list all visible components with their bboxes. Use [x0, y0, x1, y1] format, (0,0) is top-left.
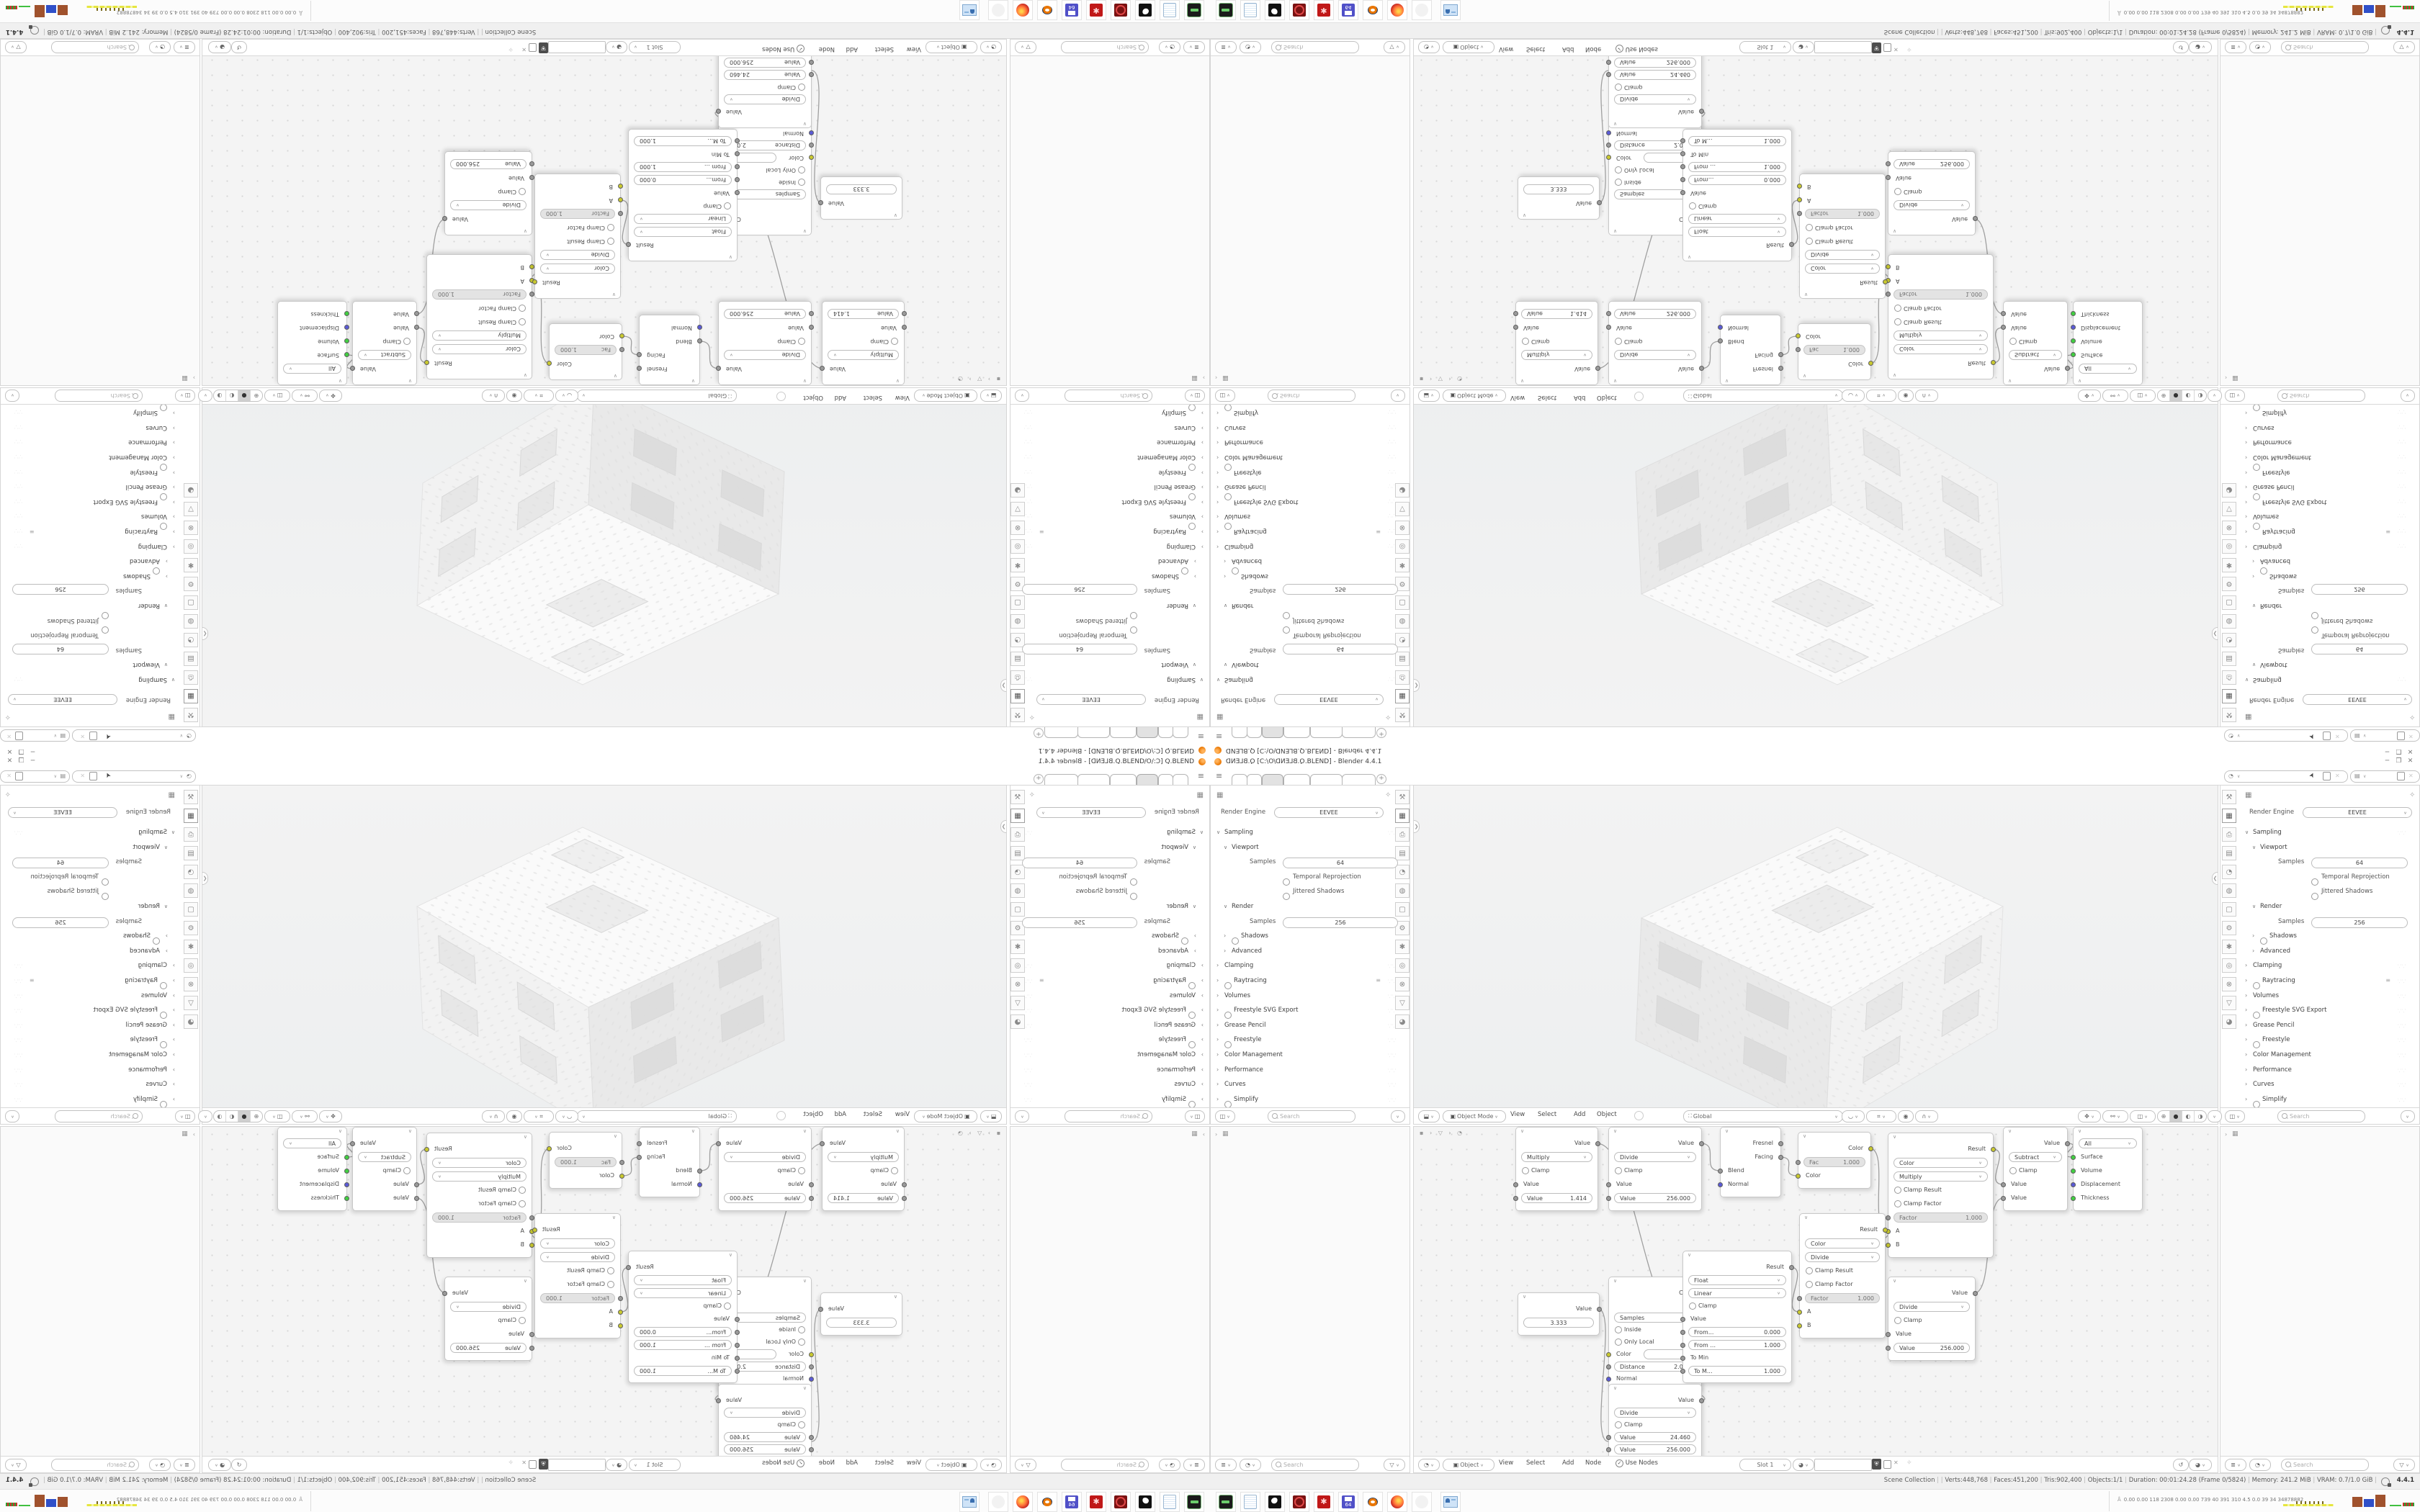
search-input[interactable]: Search — [2281, 41, 2369, 53]
scene-selector[interactable]: ◔∨➤✕ — [72, 729, 196, 742]
input-socket[interactable] — [809, 143, 814, 148]
shading-material[interactable]: ◐ — [2182, 390, 2195, 401]
display-mode-button[interactable]: ≣ ∨ — [2225, 41, 2246, 53]
input-socket[interactable] — [1680, 1317, 1685, 1322]
pin-icon[interactable]: ✧ — [1385, 713, 1391, 721]
tool-properties-tab-icon[interactable]: ⚒ — [1010, 708, 1025, 722]
input-socket[interactable] — [2001, 1182, 2006, 1187]
input-socket[interactable] — [735, 1330, 740, 1335]
prop-row-simplify[interactable]: ›Simplify⸪⸪ — [1012, 405, 1209, 418]
pin-icon[interactable]: ✧ — [2409, 791, 2415, 799]
input-socket[interactable] — [2001, 311, 2006, 316]
checkbox-unchecked[interactable] — [2311, 610, 2318, 624]
checkbox-unchecked[interactable] — [403, 1167, 411, 1175]
node-select[interactable]: All∨ — [283, 364, 341, 374]
view-layer-selector[interactable]: ▤∨✕ — [0, 770, 70, 783]
render-properties-tab-icon[interactable]: ▦ — [184, 809, 198, 823]
checkbox-unchecked[interactable] — [1224, 978, 1232, 991]
physics-properties-tab-icon[interactable]: ◎ — [184, 539, 198, 554]
editor-type-button[interactable]: ◫ ∨ — [175, 390, 195, 402]
input-socket[interactable] — [1680, 138, 1685, 143]
node-select[interactable]: Divide∨ — [724, 1152, 806, 1162]
show-gizmo-button[interactable]: ✥ ∨ — [319, 1110, 342, 1122]
view-layer-properties-tab-icon[interactable]: ▤ — [184, 652, 198, 666]
prop-row-clamping[interactable]: ›Clamping⸪⸪ — [1012, 539, 1209, 552]
node-mix-color-multiply[interactable]: ∨ResultColor∨Multiply∨Clamp ResultClamp … — [1888, 254, 1994, 379]
checkbox-unchecked[interactable] — [1894, 187, 1901, 195]
prop-row-sampling[interactable]: ∨Sampling⸪⸪ — [2239, 672, 2418, 685]
prop-row-grease-pencil[interactable]: ›Grease Pencil⸪⸪ — [2239, 1020, 2418, 1033]
prop-row-performance[interactable]: ›Performance⸪⸪ — [2, 1065, 181, 1078]
menu-select[interactable]: Select — [1526, 45, 1545, 53]
checkbox-unchecked[interactable] — [2009, 337, 2017, 345]
prop-row-advanced[interactable]: ›Advanced — [2, 946, 181, 959]
taskbar-app-red-app-1[interactable] — [1289, 1492, 1309, 1512]
shading-mode-segment[interactable]: ⊕●◐◑ — [213, 390, 263, 402]
slot-select[interactable]: Slot 1 ∨ — [1739, 1459, 1791, 1471]
checkbox-unchecked[interactable] — [2253, 491, 2260, 505]
node-select[interactable]: Divide∨ — [540, 1252, 615, 1262]
display-mode-button[interactable]: ≣ ∨ — [174, 1459, 195, 1471]
output-socket[interactable] — [716, 366, 721, 371]
prop-row-freestyle[interactable]: ›Freestyle⸪⸪ — [2, 464, 181, 477]
menu-view[interactable]: View — [907, 1459, 921, 1467]
output-socket[interactable] — [716, 109, 721, 114]
menu-view[interactable]: View — [907, 45, 921, 53]
prop-row-simplify[interactable]: ›Simplify⸪⸪ — [1211, 405, 1408, 418]
checkbox-unchecked[interactable] — [1615, 178, 1622, 186]
collapse-chevron-icon[interactable]: ∨ — [1613, 1278, 1617, 1284]
copy-icon[interactable] — [15, 732, 23, 740]
prop-row-sampling[interactable]: ∨Sampling⸪⸪ — [1211, 827, 1408, 840]
filter-type-button[interactable]: ◔ ∨ — [1159, 41, 1180, 53]
physics-properties-tab-icon[interactable]: ◎ — [184, 958, 198, 973]
prop-row-render[interactable]: ∨Render — [1012, 901, 1209, 914]
workspace-tab-3[interactable] — [1262, 774, 1283, 785]
taskbar-app-floppy-64[interactable]: 64 — [1338, 0, 1358, 20]
tool-properties-tab-icon[interactable]: ⚒ — [1010, 790, 1025, 804]
prop-row-simplify[interactable]: ›Simplify⸪⸪ — [2, 405, 181, 418]
input-socket[interactable] — [902, 1196, 907, 1201]
output-socket[interactable] — [626, 1265, 631, 1270]
prop-row-freestyle[interactable]: ›Freestyle⸪⸪ — [2239, 464, 2418, 477]
material-properties-tab-icon[interactable]: ◕ — [184, 483, 198, 498]
checkbox-unchecked[interactable] — [519, 318, 526, 325]
render-properties-tab-icon[interactable]: ▦ — [2222, 689, 2236, 703]
output-socket[interactable] — [1868, 361, 1873, 366]
checkbox-unchecked[interactable] — [607, 237, 614, 245]
close-button[interactable]: ✕ — [2406, 747, 2415, 755]
output-socket[interactable] — [2065, 1141, 2070, 1146]
node-value-field[interactable]: To M...1.000 — [1688, 136, 1786, 146]
menu-view[interactable]: View — [895, 394, 910, 401]
prop-row-curves[interactable]: ›Curves⸪⸪ — [1012, 420, 1209, 433]
constraints-properties-tab-icon[interactable]: ⊗ — [2222, 977, 2236, 991]
field-value[interactable]: 64 — [2311, 644, 2408, 654]
field-value[interactable]: 256 — [1022, 917, 1137, 928]
collapse-menus-button[interactable]: ∨ — [5, 390, 19, 402]
snapping-toggle-button[interactable]: ↺ — [231, 41, 247, 53]
prop-row-volumes[interactable]: ›Volumes⸪⸪ — [1012, 508, 1209, 521]
prop-row-freestyle-svg-export[interactable]: ›Freestyle SVG Export⸪⸪ — [1211, 494, 1408, 507]
material-properties-tab-icon[interactable]: ◕ — [2222, 483, 2236, 498]
workspace-tab-6[interactable] — [1044, 727, 1078, 738]
checkbox-unchecked[interactable] — [1130, 874, 1137, 888]
node-map-range[interactable]: ∨ResultFloat∨Linear∨ClampValueFrom...0.0… — [1682, 1251, 1792, 1383]
show-gizmo-button[interactable]: ✥ ∨ — [2078, 390, 2101, 402]
checkbox-unchecked[interactable] — [1806, 237, 1813, 245]
node-select[interactable]: Divide∨ — [1894, 1302, 1970, 1312]
taskbar-app-drive-utility[interactable] — [1216, 0, 1236, 20]
input-socket[interactable] — [2071, 352, 2076, 357]
render-properties-tab-icon[interactable]: ▦ — [1010, 809, 1025, 823]
node-math-divide-2[interactable]: ∨ValueDivide∨ClampValue24.460Value256.00… — [1608, 51, 1702, 128]
node-layer-weight[interactable]: ∨FresnelFacingBlendNormal — [1720, 1127, 1781, 1197]
close-x-icon[interactable]: ✕ — [521, 46, 526, 53]
prop-row-shadows[interactable]: ›Shadows — [2239, 931, 2418, 944]
menu-node[interactable]: Node — [819, 1459, 835, 1467]
browse-material-button[interactable]: ◕ ∨ — [606, 41, 627, 53]
checkbox-unchecked[interactable] — [160, 1007, 167, 1021]
search-input[interactable]: Search — [1065, 1110, 1152, 1122]
pin-icon[interactable]: ➤ — [103, 771, 112, 779]
output-socket[interactable] — [1883, 279, 1888, 284]
editor-type-button[interactable]: ◔ ∨ — [1418, 41, 1440, 53]
node-value[interactable]: ∨Value3.333 — [1518, 1292, 1600, 1336]
add-workspace-button[interactable]: + — [1376, 728, 1386, 738]
taskbar-app-red-app-1[interactable] — [1111, 1492, 1131, 1512]
mode-select[interactable]: ▣ Object Mode ∨ — [914, 390, 977, 402]
menu-object[interactable]: Object — [1597, 394, 1617, 401]
node-output-all[interactable]: ∨All∨SurfaceVolumeDisplacementThickness — [277, 1127, 347, 1211]
checkbox-unchecked[interactable] — [1130, 624, 1137, 638]
node-value-field[interactable]: Value24.460 — [724, 1432, 806, 1442]
prop-row-render[interactable]: ∨Render — [1012, 598, 1209, 611]
output-socket[interactable] — [442, 1291, 447, 1296]
checkbox-unchecked[interactable] — [798, 337, 805, 345]
transform-orientation-select[interactable]: ⛶ Global∨ — [577, 1110, 737, 1122]
node-value-field[interactable]: To M...1.000 — [1688, 1366, 1786, 1376]
prop-row-temporal-reprojection[interactable]: Temporal Reprojection — [2, 627, 181, 640]
input-socket[interactable] — [2071, 311, 2076, 316]
node-select[interactable]: Float∨ — [634, 227, 732, 237]
node-math-subtract[interactable]: ∨ValueSubtract∨ClampValueValue — [2003, 301, 2068, 385]
input-socket[interactable] — [735, 151, 740, 156]
checkbox-unchecked[interactable] — [2311, 888, 2318, 902]
prop-row-volumes[interactable]: ›Volumes⸪⸪ — [2239, 508, 2418, 521]
copy-icon[interactable] — [1883, 1460, 1891, 1469]
collapse-chevron-icon[interactable]: ∨ — [1520, 1128, 1524, 1134]
filter-funnel-button[interactable]: ▽ ∨ — [2393, 1459, 2415, 1471]
taskbar-app-ghost-app[interactable] — [1412, 0, 1432, 20]
prop-row-freestyle[interactable]: ›Freestyle⸪⸪ — [2239, 1035, 2418, 1048]
render-properties-tab-icon[interactable]: ▦ — [1395, 689, 1410, 703]
prop-row-volumes[interactable]: ›Volumes⸪⸪ — [2, 991, 181, 1004]
prop-row-viewport[interactable]: ∨Viewport — [1211, 657, 1408, 670]
node-select[interactable]: Divide∨ — [1805, 1252, 1880, 1262]
modifiers-properties-tab-icon[interactable]: ⚙ — [184, 577, 198, 591]
input-socket[interactable] — [1886, 161, 1891, 166]
prop-row-grease-pencil[interactable]: ›Grease Pencil⸪⸪ — [1012, 1020, 1209, 1033]
shading-material[interactable]: ◐ — [2182, 1111, 2195, 1122]
snap-target-button[interactable]: ⌗ ∨ — [1866, 390, 1896, 402]
output-socket[interactable] — [350, 1141, 355, 1146]
output-socket[interactable] — [1883, 1228, 1888, 1233]
checkbox-unchecked[interactable] — [1615, 1421, 1622, 1429]
checkbox-unchecked[interactable] — [1615, 1338, 1622, 1346]
transform-orientation-select[interactable]: ⛶ Global∨ — [577, 390, 737, 402]
field-value[interactable]: 64 — [1022, 644, 1137, 654]
node-value[interactable]: ∨Value3.333 — [1518, 176, 1600, 220]
node-mix-fac[interactable]: ∨ColorFac1.000Color — [1798, 323, 1871, 380]
node-select[interactable]: Color∨ — [1805, 1238, 1880, 1248]
input-socket[interactable] — [1606, 1447, 1611, 1452]
node-layer-weight[interactable]: ∨FresnelFacingBlendNormal — [1720, 315, 1781, 385]
node-select[interactable]: Color∨ — [432, 344, 526, 354]
minimize-button[interactable]: ─ — [28, 747, 37, 755]
input-socket[interactable] — [414, 1182, 419, 1187]
editor-type-button[interactable]: ⬓ ∨ — [980, 1110, 1002, 1122]
world-properties-tab-icon[interactable]: ◍ — [184, 883, 198, 898]
node-value-field[interactable]: Value256.000 — [1894, 159, 1970, 169]
taskbar-app-floppy-64[interactable]: 64 — [1338, 1492, 1358, 1512]
output-socket[interactable] — [818, 1307, 823, 1312]
node-select[interactable]: Multiply∨ — [1521, 1152, 1592, 1162]
search-input[interactable]: Search — [1268, 390, 1355, 402]
prop-row-clamping[interactable]: ›Clamping⸪⸪ — [2, 960, 181, 973]
snap-target-button[interactable]: ⌗ ∨ — [524, 390, 554, 402]
node-math-divide-3[interactable]: ∨ValueDivide∨ClampValueValue256.000 — [444, 151, 532, 235]
input-socket[interactable] — [809, 1377, 814, 1382]
prop-row-sampling[interactable]: ∨Sampling⸪⸪ — [1012, 827, 1209, 840]
copy-icon[interactable] — [15, 772, 23, 780]
prop-row-curves[interactable]: ›Curves⸪⸪ — [2, 420, 181, 433]
checkbox-unchecked[interactable] — [891, 337, 898, 345]
shader-type-select[interactable]: ▣ Object ∨ — [926, 41, 977, 53]
taskbar-app-red-app-2[interactable]: ✱ — [1314, 1492, 1334, 1512]
collapse-chevron-icon[interactable]: ∨ — [524, 372, 527, 378]
output-socket[interactable] — [820, 1141, 825, 1146]
input-socket[interactable] — [902, 1182, 907, 1187]
prop-row-jittered-shadows[interactable]: Jittered Shadows — [2239, 613, 2418, 626]
node-select[interactable]: All∨ — [283, 1138, 341, 1148]
prop-row-raytracing[interactable]: ›Raytracing≡⸪⸪ — [1012, 976, 1209, 989]
add-workspace-button[interactable]: + — [1376, 774, 1386, 784]
prop-row-sampling[interactable]: ∨Sampling⸪⸪ — [2, 672, 181, 685]
checkbox-unchecked[interactable] — [1522, 337, 1529, 345]
object-properties-tab-icon[interactable]: ▢ — [184, 595, 198, 610]
input-socket[interactable] — [809, 1364, 814, 1369]
copy-icon[interactable] — [2397, 732, 2405, 740]
taskbar-app-blender[interactable] — [1363, 0, 1383, 20]
prop-row-grease-pencil[interactable]: ›Grease Pencil⸪⸪ — [1012, 479, 1209, 492]
prop-row-clamping[interactable]: ›Clamping⸪⸪ — [2239, 539, 2418, 552]
node-math-divide-2[interactable]: ∨ValueDivide∨ClampValue24.460Value256.00… — [1608, 1384, 1702, 1461]
checkbox-unchecked[interactable] — [1894, 1187, 1901, 1194]
node-select[interactable]: Multiply∨ — [828, 1152, 899, 1162]
editor-type-button[interactable]: ◫ ∨ — [1185, 390, 1205, 402]
snapping-button[interactable]: ◡ ∨ — [555, 1110, 578, 1122]
collapse-chevron-icon[interactable]: ∨ — [1523, 212, 1526, 218]
workspace-tab-5[interactable] — [1077, 774, 1110, 785]
prop-row-freestyle-svg-export[interactable]: ›Freestyle SVG Export⸪⸪ — [2, 494, 181, 507]
prop-row-temporal-reprojection[interactable]: Temporal Reprojection — [1211, 872, 1408, 885]
filter-type-button[interactable]: ◔ ∨ — [149, 1459, 171, 1471]
search-input[interactable]: Search — [1268, 1110, 1355, 1122]
node-value-field[interactable]: Factor1.000 — [540, 209, 615, 219]
input-socket[interactable] — [697, 325, 702, 330]
prop-row-samples[interactable]: Samples256 — [1012, 917, 1209, 930]
shading-rendered[interactable]: ◑ — [2195, 1111, 2206, 1122]
input-socket[interactable] — [1606, 1182, 1611, 1187]
checkbox-unchecked[interactable] — [1615, 166, 1622, 174]
display-mode-button[interactable]: ≣ ∨ — [1215, 1459, 1237, 1471]
node-select[interactable]: Subtract∨ — [2009, 350, 2062, 360]
collapse-chevron-icon[interactable]: ∨ — [339, 1128, 342, 1134]
node-select[interactable]: Linear∨ — [634, 1288, 732, 1298]
tool-properties-tab-icon[interactable]: ⚒ — [184, 708, 198, 722]
checkbox-unchecked[interactable] — [1224, 1037, 1232, 1050]
falloff-button[interactable]: ∩ ∨ — [482, 390, 505, 402]
copy-icon[interactable] — [89, 772, 97, 780]
field-value[interactable]: 256 — [2311, 584, 2408, 595]
output-socket[interactable] — [637, 352, 642, 357]
collapse-chevron-icon[interactable]: ∨ — [894, 212, 897, 218]
prop-row-viewport[interactable]: ∨Viewport — [2, 842, 181, 855]
prop-row-viewport[interactable]: ∨Viewport — [1012, 842, 1209, 855]
menu-select[interactable]: Select — [1526, 1459, 1545, 1467]
input-socket[interactable] — [1606, 60, 1611, 65]
checkbox-unchecked[interactable] — [1615, 1167, 1622, 1175]
proportional-editing-button[interactable]: ◉ — [506, 390, 522, 402]
node-select[interactable]: Multiply∨ — [1894, 330, 1988, 341]
falloff-button[interactable]: ∩ ∨ — [1915, 390, 1938, 402]
shader-type-select[interactable]: ▣ Object ∨ — [1443, 1459, 1494, 1471]
output-socket[interactable] — [1699, 366, 1704, 371]
close-x-icon[interactable]: ✕ — [1894, 46, 1899, 53]
checkbox-unchecked[interactable] — [160, 978, 167, 991]
world-properties-tab-icon[interactable]: ◍ — [184, 614, 198, 629]
collapse-chevron-icon[interactable]: ∨ — [803, 1128, 807, 1134]
input-socket[interactable] — [1680, 1330, 1685, 1335]
input-socket[interactable] — [619, 1174, 624, 1179]
input-socket[interactable] — [619, 1160, 624, 1165]
node-select[interactable]: All∨ — [2079, 364, 2137, 374]
prop-row-advanced[interactable]: ›Advanced — [1211, 946, 1408, 959]
workspace-tab-4[interactable] — [1283, 727, 1310, 738]
overlays-button[interactable]: ⚯ ∨ — [292, 1110, 318, 1122]
checkbox-unchecked[interactable] — [1188, 1037, 1196, 1050]
checkbox-unchecked[interactable] — [798, 166, 805, 174]
prop-row-jittered-shadows[interactable]: Jittered Shadows — [1012, 886, 1209, 899]
collapse-chevron-icon[interactable]: ∨ — [408, 378, 412, 384]
checkbox-unchecked[interactable] — [153, 565, 160, 579]
filter-funnel-button[interactable]: ▽ ∨ — [1384, 41, 1405, 53]
node-value-field[interactable]: Value256.000 — [450, 159, 526, 169]
input-socket[interactable] — [1718, 1169, 1723, 1174]
checkbox-unchecked[interactable] — [102, 874, 109, 888]
node-value-field[interactable]: Fac1.000 — [1803, 1157, 1865, 1167]
collapse-chevron-icon[interactable]: ∨ — [1520, 378, 1524, 384]
output-socket[interactable] — [716, 1141, 721, 1146]
transform-orientation-select[interactable]: ⛶ Global∨ — [1683, 390, 1843, 402]
taskbar-app-ghost-app[interactable] — [988, 1492, 1008, 1512]
checkbox-unchecked[interactable] — [1232, 565, 1239, 579]
input-socket[interactable] — [1680, 190, 1685, 195]
prop-row-jittered-shadows[interactable]: Jittered Shadows — [1211, 613, 1408, 626]
collapse-chevron-icon[interactable]: ∨ — [1893, 1134, 1896, 1140]
prop-row-freestyle[interactable]: ›Freestyle⸪⸪ — [1012, 1035, 1209, 1048]
taskbar-app-gimp[interactable] — [1135, 0, 1155, 20]
menu-node[interactable]: Node — [819, 45, 835, 53]
close-x-icon[interactable]: ✕ — [80, 773, 85, 779]
node-value-field[interactable]: Value256.000 — [450, 1343, 526, 1353]
menu-add[interactable]: Add — [1574, 1111, 1585, 1118]
restore-button[interactable]: ❐ — [17, 757, 26, 765]
filter-type-button[interactable]: ◔ ∨ — [2249, 1459, 2271, 1471]
collapse-chevron-icon[interactable]: ∨ — [1725, 378, 1729, 384]
prop-row-render[interactable]: ∨Render — [2239, 901, 2418, 914]
prop-row-freestyle[interactable]: ›Freestyle⸪⸪ — [1012, 464, 1209, 477]
node-output-all[interactable]: ∨All∨SurfaceVolumeDisplacementThickness — [277, 301, 347, 385]
material-properties-tab-icon[interactable]: ◕ — [2222, 1014, 2236, 1029]
checkbox-unchecked[interactable] — [2253, 521, 2260, 534]
node-select[interactable]: Color∨ — [540, 1238, 615, 1248]
material-name-field[interactable] — [1814, 41, 1872, 53]
input-socket[interactable] — [902, 311, 907, 316]
pin-icon[interactable]: ✧ — [5, 791, 11, 799]
taskbar-app-system-monitor[interactable] — [1440, 0, 1461, 20]
tool-properties-tab-icon[interactable]: ⚒ — [1395, 790, 1410, 804]
render-properties-tab-icon[interactable]: ▦ — [2222, 809, 2236, 823]
prop-row-raytracing[interactable]: ›Raytracing≡⸪⸪ — [1012, 523, 1209, 536]
collapse-chevron-icon[interactable]: ∨ — [691, 378, 695, 384]
node-select[interactable]: Float∨ — [1688, 227, 1786, 237]
node-value-field[interactable]: Value256.000 — [1614, 309, 1696, 319]
scene-selector[interactable]: ◔∨➤✕ — [2224, 770, 2348, 783]
add-workspace-button[interactable]: + — [1034, 774, 1044, 784]
modifiers-properties-tab-icon[interactable]: ⚙ — [2222, 577, 2236, 591]
menu-object[interactable]: Object — [1597, 1111, 1617, 1118]
node-select[interactable]: Multiply∨ — [432, 1171, 526, 1182]
output-socket[interactable] — [1699, 1141, 1704, 1146]
checkbox-unchecked[interactable] — [2260, 933, 2267, 947]
field-value[interactable]: 256 — [2311, 917, 2408, 928]
close-x-icon[interactable]: ✕ — [2335, 733, 2340, 739]
input-socket[interactable] — [414, 311, 419, 316]
input-socket[interactable] — [1513, 1182, 1518, 1187]
prop-row-color-management[interactable]: ›Color Management⸪⸪ — [2239, 449, 2418, 462]
prop-row-samples[interactable]: Samples64 — [2, 857, 181, 870]
filter-type-button[interactable]: ◔ ∨ — [1240, 41, 1261, 53]
search-input[interactable]: Search — [51, 1459, 139, 1471]
node-value-field[interactable]: 3.333 — [826, 1318, 897, 1328]
fake-user-shield-button[interactable]: ⛨ — [539, 42, 548, 53]
prop-row-temporal-reprojection[interactable]: Temporal Reprojection — [1012, 872, 1209, 885]
output-socket[interactable] — [547, 361, 552, 366]
app-menu-icon[interactable]: ≡ — [1216, 732, 1222, 741]
object-properties-tab-icon[interactable]: ▢ — [2222, 902, 2236, 917]
prop-row-freestyle-svg-export[interactable]: ›Freestyle SVG Export⸪⸪ — [2239, 494, 2418, 507]
collapse-chevron-icon[interactable]: ∨ — [2008, 378, 2012, 384]
output-socket[interactable] — [626, 242, 631, 247]
node-select[interactable]: Multiply∨ — [1894, 1171, 1988, 1182]
scene-properties-tab-icon[interactable]: ◔ — [184, 633, 198, 647]
node-value-field[interactable]: Value256.000 — [1614, 1193, 1696, 1203]
collapse-menus-button[interactable]: ∨ — [2401, 1110, 2415, 1122]
input-socket[interactable] — [809, 1447, 814, 1452]
sidebar-toggle-arrow[interactable]: ❮ — [2212, 627, 2218, 640]
